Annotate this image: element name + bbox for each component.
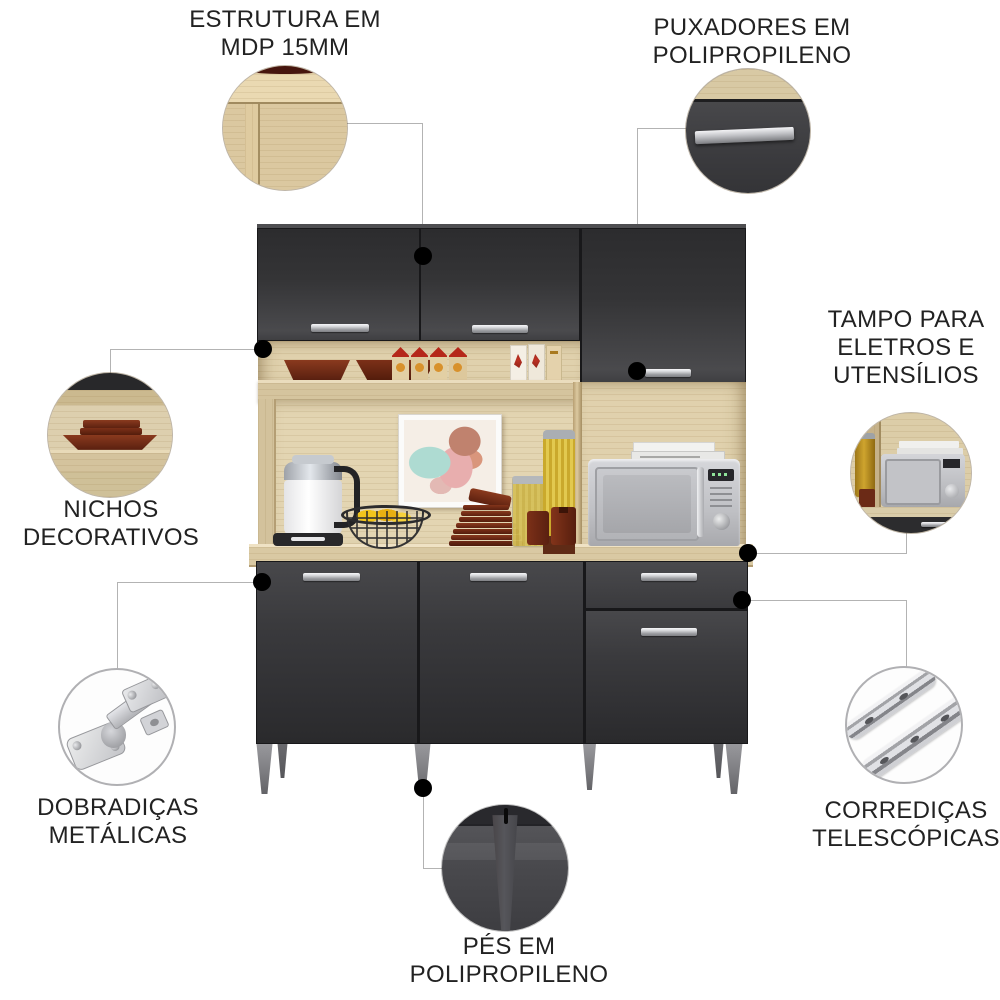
cabinet-leg	[712, 744, 725, 778]
label-line: POLIPROPILENO	[602, 42, 902, 70]
callout-label-corredicas: CORREDIÇAS TELESCÓPICAS	[795, 797, 1000, 853]
microwave-mini	[881, 454, 965, 507]
dark-top-band	[48, 373, 172, 390]
label-line: NICHOS	[0, 496, 222, 524]
leader-line	[347, 123, 423, 124]
top-rail	[223, 74, 347, 104]
leader-line	[906, 600, 907, 667]
book	[899, 441, 959, 448]
handle-bar	[694, 126, 794, 143]
label-line: DOBRADIÇAS	[7, 794, 229, 822]
connector-dot	[414, 247, 432, 265]
label-line: POLIPROPILENO	[398, 961, 620, 989]
cabinet-top-edge	[257, 224, 746, 228]
door-handle	[470, 573, 527, 581]
basket-rim	[341, 505, 431, 525]
hinge-side-plate	[140, 709, 170, 737]
microwave	[588, 459, 740, 546]
lower-door-center	[420, 562, 583, 743]
slide-rail-detail-photo	[845, 666, 963, 784]
label-line: DECORATIVOS	[0, 524, 222, 552]
handle-detail-photo	[686, 69, 810, 193]
connector-dot	[628, 362, 646, 380]
microwave-panel	[708, 467, 734, 539]
leader-line	[742, 600, 907, 601]
callout-label-estrutura: ESTRUTURA EM MDP 15MM	[135, 6, 435, 62]
decorative-tray	[284, 360, 350, 380]
microwave-handle	[697, 467, 704, 537]
spice-shaker	[527, 511, 549, 545]
drawer-handle-sliver	[921, 522, 962, 527]
leader-line	[637, 128, 687, 129]
label-line: TELESCÓPICAS	[795, 825, 1000, 853]
microwave-knob	[945, 484, 959, 498]
cereal-box	[546, 345, 562, 382]
spice-shaker	[551, 507, 576, 545]
cabinet-leg	[581, 744, 598, 790]
niche-detail-photo	[48, 373, 172, 497]
leader-line	[110, 349, 111, 375]
cereal-box	[528, 344, 545, 382]
drawer-band	[851, 517, 971, 533]
shaker	[859, 489, 875, 508]
tray-stack-mid	[80, 428, 142, 435]
kettle-base	[273, 533, 343, 546]
connector-dot	[733, 591, 751, 609]
leader-line	[117, 582, 262, 583]
tray-stack-top	[83, 420, 140, 427]
callout-label-puxadores: PUXADORES EM POLIPROPILENO	[602, 14, 902, 70]
foot-silhouette	[474, 815, 537, 931]
door-handle	[645, 369, 691, 377]
callout-label-dobradicas: DOBRADIÇAS METÁLICAS	[7, 794, 229, 850]
microwave-door	[885, 459, 941, 505]
label-line: ELETROS E	[756, 334, 1000, 362]
leader-line	[423, 868, 444, 869]
upper-door-right	[582, 229, 745, 382]
connector-dot	[253, 573, 271, 591]
door-handle	[303, 573, 360, 581]
callout-label-tampo: TAMPO PARA ELETROS E UTENSÍLIOS	[756, 306, 1000, 390]
lower-back	[48, 472, 172, 497]
callout-label-pes: PÉS EM POLIPROPILENO	[398, 933, 620, 989]
side-stile	[245, 104, 260, 190]
door-handle	[311, 324, 369, 332]
leader-line	[423, 788, 424, 868]
label-line: PÉS EM	[398, 933, 620, 961]
foot-detail-photo	[442, 805, 568, 931]
connector-dot	[254, 340, 272, 358]
door-handle	[641, 628, 697, 636]
lower-door-left	[257, 562, 417, 743]
upper-door-center	[421, 229, 579, 340]
cereal-box	[510, 345, 527, 382]
label-line: ESTRUTURA EM	[135, 6, 435, 34]
label-line: UTENSÍLIOS	[756, 362, 1000, 390]
drawer-front	[586, 562, 747, 608]
microwave-display	[943, 459, 960, 467]
hinge-detail-photo	[58, 668, 176, 786]
cabinet-leg	[276, 744, 289, 778]
left-side-panel	[258, 399, 276, 545]
leader-line	[110, 349, 263, 350]
drawer-handle	[641, 573, 697, 581]
product-infographic: ESTRUTURA EM MDP 15MM PUXADORES EM POLIP…	[0, 0, 1000, 1000]
label-line: METÁLICAS	[7, 822, 229, 850]
label-line: CORREDIÇAS	[795, 797, 1000, 825]
counter-band	[851, 507, 971, 518]
cabinet-leg	[254, 744, 275, 794]
label-line: PUXADORES EM	[602, 14, 902, 42]
door-handle	[472, 325, 528, 333]
wood-band	[686, 69, 810, 102]
fruit-basket	[341, 505, 425, 549]
leader-line	[117, 582, 118, 669]
label-line: MDP 15MM	[135, 34, 435, 62]
microwave-door	[595, 467, 699, 541]
top-tick	[504, 808, 508, 824]
wood-structure-photo	[223, 66, 347, 190]
connector-dot	[414, 779, 432, 797]
microwave-knob	[713, 513, 730, 530]
label-line: TAMPO PARA	[756, 306, 1000, 334]
callout-label-nichos: NICHOS DECORATIVOS	[0, 496, 222, 552]
kettle-lid	[292, 455, 334, 464]
leader-line	[748, 553, 907, 554]
cabinet-leg	[723, 744, 745, 794]
microwave-display	[708, 469, 734, 481]
jar	[855, 433, 875, 497]
countertop-detail-photo	[851, 413, 971, 533]
connector-dot	[739, 544, 757, 562]
tray-large	[63, 435, 157, 450]
